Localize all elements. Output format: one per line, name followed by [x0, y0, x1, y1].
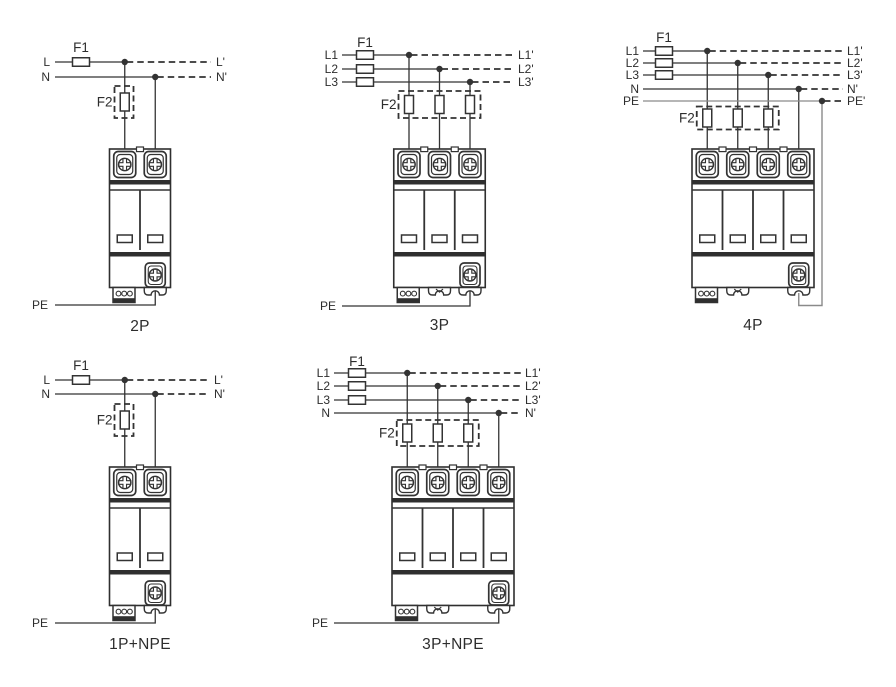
junction-dot: [819, 98, 825, 104]
input-label-n: N: [321, 406, 330, 420]
junction-dot: [435, 383, 441, 389]
indicator-window: [430, 553, 445, 561]
f1-fuse: [656, 59, 673, 68]
input-label-l: L: [43, 55, 50, 69]
contact-block-base: [696, 298, 718, 302]
diagram-caption: 3P: [430, 317, 450, 334]
din-clip: [727, 288, 749, 296]
contact-hole: [399, 609, 404, 614]
diagram-caption: 3P+NPE: [422, 636, 484, 653]
f2-fuse: [466, 96, 475, 114]
pe-label: PE: [320, 299, 336, 313]
f1-label: F1: [73, 358, 89, 373]
contact-hole: [699, 291, 704, 296]
contact-hole: [122, 291, 127, 296]
contact-hole: [127, 609, 132, 614]
f2-label: F2: [97, 95, 113, 110]
contact-hole: [710, 291, 715, 296]
output-label: L2': [518, 62, 534, 76]
din-clip: [429, 288, 451, 296]
contact-block-base: [113, 298, 135, 302]
top-notch: [480, 465, 487, 470]
junction-dot: [152, 74, 158, 80]
f1-fuse: [357, 51, 374, 60]
junction-dot: [152, 391, 158, 397]
output-label: L3': [525, 393, 541, 407]
diagram-4p: L1L1'L2L2'L3L3'NN'PEPE'F1F24P: [623, 30, 865, 334]
f2-fuse: [433, 424, 442, 442]
device-band: [392, 498, 514, 503]
top-notch: [780, 147, 787, 152]
f1-fuse: [349, 369, 366, 378]
input-label-l2: L2: [325, 62, 339, 76]
indicator-window: [791, 235, 806, 243]
f2-fuse: [764, 109, 773, 127]
junction-dot: [496, 410, 502, 416]
diagram-1p-npe: LL'NN'F1F2PE1P+NPE: [32, 358, 225, 653]
diagram-3p: L1L1'L2L2'L3L3'F1F2PE3P: [320, 35, 534, 334]
junction-dot: [765, 72, 771, 78]
junction-dot: [404, 370, 410, 376]
contact-hole: [122, 609, 127, 614]
device-band: [394, 180, 486, 185]
pe-label: PE: [312, 616, 328, 630]
junction-dot: [436, 66, 442, 72]
f1-fuse: [349, 382, 366, 391]
f1-label: F1: [73, 40, 89, 55]
input-label-n: N: [41, 387, 50, 401]
f2-label: F2: [381, 97, 397, 112]
f2-fuse: [405, 96, 414, 114]
input-label-l: L: [43, 373, 50, 387]
device-band: [692, 180, 814, 185]
contact-hole: [127, 291, 132, 296]
indicator-window: [730, 235, 745, 243]
diagram-2p: LL'NN'F1F2PE2P: [32, 40, 227, 335]
top-notch: [719, 147, 726, 152]
f2-fuse: [435, 96, 444, 114]
f2-label: F2: [379, 426, 395, 441]
output-label: L3': [847, 68, 863, 82]
pe-wire: [55, 290, 155, 305]
output-label: N': [214, 387, 225, 401]
f1-fuse: [656, 71, 673, 80]
f2-label: F2: [97, 413, 113, 428]
top-notch: [419, 465, 426, 470]
diagram-caption: 2P: [130, 318, 150, 335]
indicator-window: [400, 553, 415, 561]
top-notch: [137, 147, 144, 152]
input-label-pe: PE: [623, 94, 639, 108]
output-label: L1': [525, 366, 541, 380]
indicator-window: [761, 235, 776, 243]
diagram-caption: 1P+NPE: [109, 636, 171, 653]
junction-dot: [122, 377, 128, 383]
output-label: L2': [525, 379, 541, 393]
spd-wiring-diagrams-canvas: LL'NN'F1F2PE2PL1L1'L2L2'L3L3'F1F2PE3PL1L…: [0, 0, 896, 687]
device-band: [394, 252, 486, 257]
contact-hole: [406, 291, 411, 296]
page: LL'NN'F1F2PE2PL1L1'L2L2'L3L3'F1F2PE3PL1L…: [0, 0, 896, 687]
input-label-l1: L1: [317, 366, 331, 380]
contact-block-base: [396, 616, 418, 620]
f1-label: F1: [349, 354, 365, 369]
f1-label: F1: [656, 30, 672, 45]
contact-hole: [400, 291, 405, 296]
junction-dot: [735, 60, 741, 66]
contact-hole: [704, 291, 709, 296]
indicator-window: [461, 553, 476, 561]
input-label-l3: L3: [317, 393, 331, 407]
contact-hole: [404, 609, 409, 614]
f2-fuse: [464, 424, 473, 442]
pe-label: PE: [32, 616, 48, 630]
junction-dot: [406, 52, 412, 58]
f2-fuse: [120, 411, 129, 429]
top-notch: [450, 465, 457, 470]
contact-hole: [116, 609, 121, 614]
contact-hole: [412, 291, 417, 296]
diagram-caption: 4P: [743, 317, 763, 334]
indicator-window: [491, 553, 506, 561]
input-label-n: N: [41, 70, 50, 84]
contact-block-base: [113, 616, 135, 620]
input-label-l1: L1: [325, 48, 339, 62]
f1-label: F1: [357, 35, 373, 50]
input-label-l2: L2: [317, 379, 331, 393]
output-label: L': [214, 373, 223, 387]
f1-fuse: [357, 65, 374, 74]
input-label-l3: L3: [325, 75, 339, 89]
output-label: L3': [518, 75, 534, 89]
top-notch: [451, 147, 458, 152]
f1-fuse: [357, 78, 374, 87]
din-clip: [427, 606, 449, 614]
f1-fuse: [73, 58, 90, 67]
indicator-window: [148, 235, 163, 243]
indicator-window: [432, 235, 447, 243]
device-band: [110, 252, 171, 257]
f2-fuse: [403, 424, 412, 442]
contact-block-base: [397, 298, 419, 302]
junction-dot: [467, 79, 473, 85]
pe-label: PE: [32, 298, 48, 312]
junction-dot: [122, 59, 128, 65]
device-band: [110, 498, 171, 503]
output-label: L1': [518, 48, 534, 62]
input-label-l3: L3: [626, 68, 640, 82]
indicator-window: [402, 235, 417, 243]
f2-fuse: [733, 109, 742, 127]
diagram-3p-npe: L1L1'L2L2'L3L3'NN'F1F2PE3P+NPE: [312, 354, 541, 653]
f2-label: F2: [679, 111, 695, 126]
top-notch: [750, 147, 757, 152]
junction-dot: [704, 48, 710, 54]
device-band: [110, 180, 171, 185]
output-label: N': [216, 70, 227, 84]
indicator-window: [117, 235, 132, 243]
pe-wire: [55, 608, 155, 623]
device-band: [392, 570, 514, 575]
output-label: PE': [847, 94, 865, 108]
junction-dot: [465, 397, 471, 403]
output-label: N': [525, 406, 536, 420]
indicator-window: [463, 235, 478, 243]
f1-fuse: [656, 47, 673, 56]
top-notch: [137, 465, 144, 470]
f2-fuse: [703, 109, 712, 127]
indicator-window: [148, 553, 163, 561]
f1-fuse: [73, 376, 90, 385]
top-notch: [421, 147, 428, 152]
contact-hole: [410, 609, 415, 614]
f1-fuse: [349, 396, 366, 405]
junction-dot: [796, 86, 802, 92]
indicator-window: [700, 235, 715, 243]
device-band: [110, 570, 171, 575]
contact-hole: [116, 291, 121, 296]
device-band: [692, 252, 814, 257]
f2-fuse: [120, 93, 129, 111]
indicator-window: [117, 553, 132, 561]
output-label: L': [216, 55, 225, 69]
